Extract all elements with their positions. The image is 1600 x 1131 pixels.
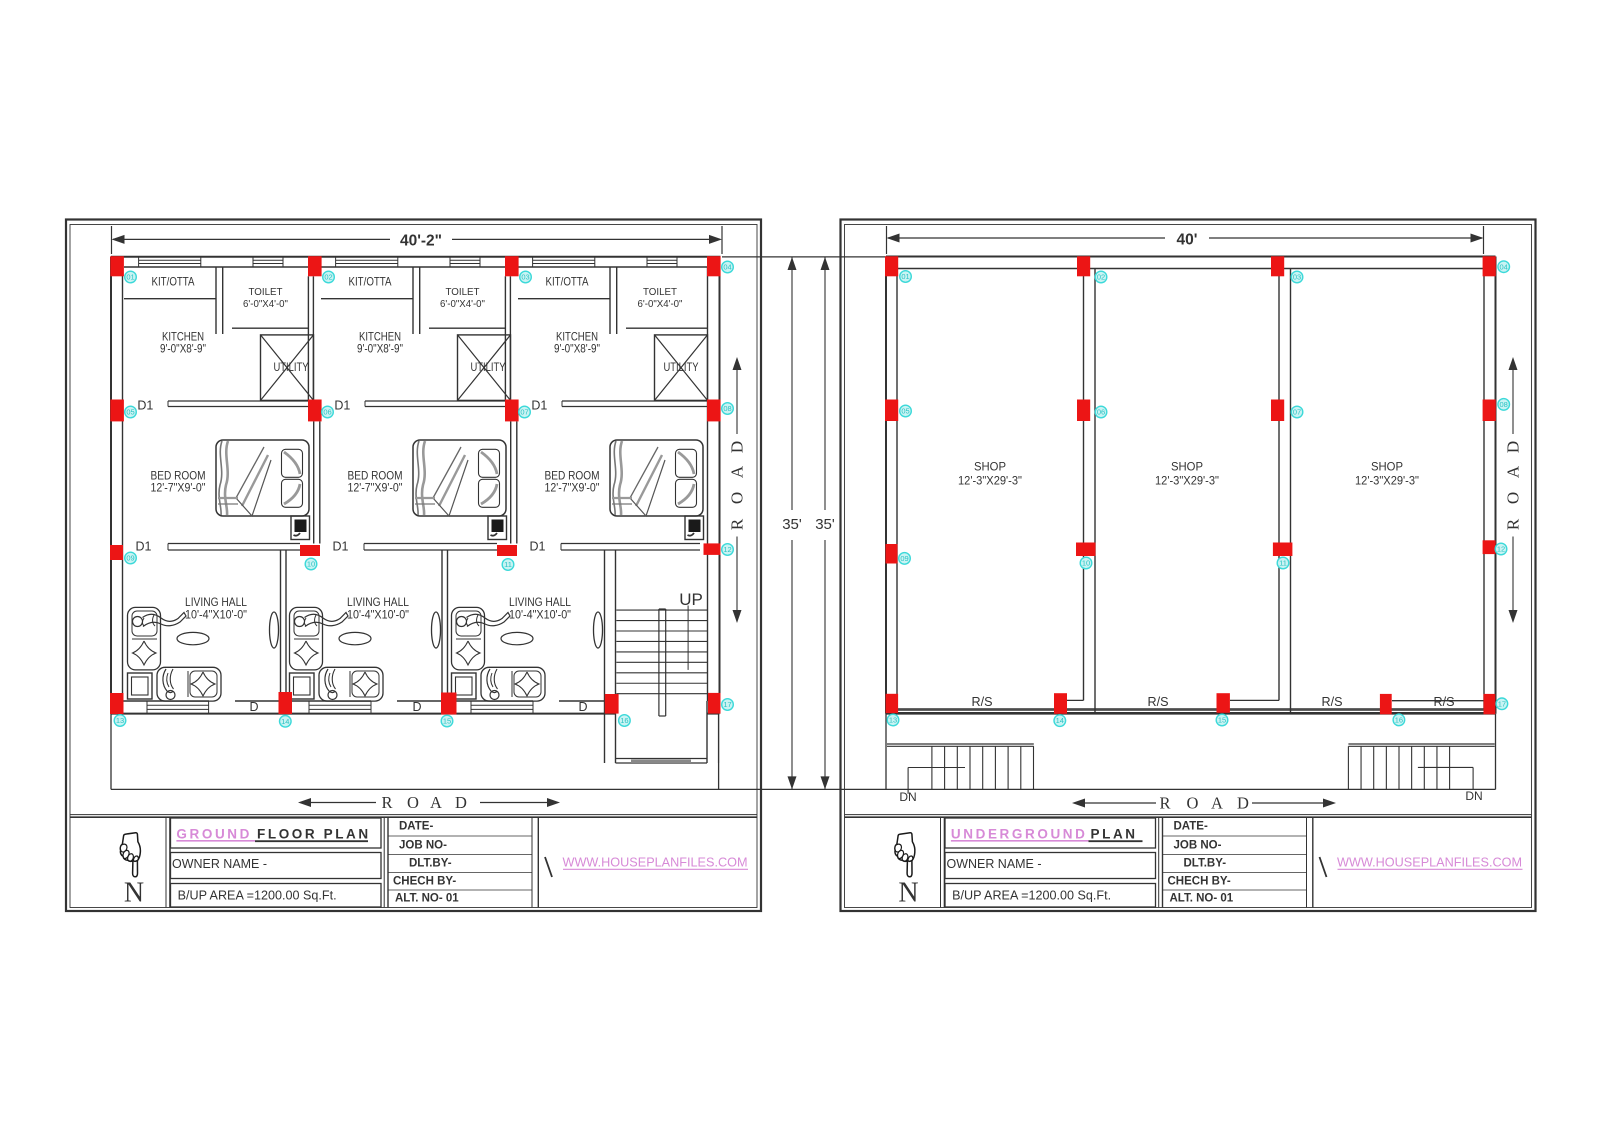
svg-text:02: 02: [324, 273, 332, 282]
svg-text:A: A: [1504, 465, 1523, 478]
svg-text:12'-7"X9'-0": 12'-7"X9'-0": [545, 481, 600, 495]
svg-text:07: 07: [520, 408, 528, 417]
svg-text:9'-0"X8'-9": 9'-0"X8'-9": [160, 342, 206, 356]
svg-text:12: 12: [723, 545, 731, 554]
svg-text:GROUND: GROUND: [176, 826, 252, 841]
svg-text:O: O: [1504, 492, 1523, 504]
svg-text:DLT.BY-: DLT.BY-: [1184, 858, 1227, 870]
svg-text:09: 09: [126, 554, 134, 563]
svg-text:SHOP: SHOP: [1371, 460, 1403, 474]
svg-text:KIT/OTTA: KIT/OTTA: [546, 275, 589, 289]
svg-text:DN: DN: [899, 790, 916, 804]
svg-text:R/S: R/S: [972, 694, 993, 709]
svg-text:05: 05: [126, 408, 134, 417]
svg-text:KIT/OTTA: KIT/OTTA: [152, 275, 195, 289]
svg-text:35': 35': [782, 516, 802, 533]
svg-text:35': 35': [815, 516, 835, 533]
svg-text:A: A: [430, 793, 442, 812]
svg-text:01: 01: [901, 272, 909, 281]
svg-text:12'-3"X29'-3": 12'-3"X29'-3": [1355, 474, 1419, 488]
svg-text:PLAN: PLAN: [1091, 826, 1138, 841]
svg-text:UTILITY: UTILITY: [471, 360, 506, 374]
svg-text:10: 10: [307, 560, 315, 569]
svg-text:15: 15: [1218, 716, 1226, 725]
svg-text:UTILITY: UTILITY: [274, 360, 309, 374]
svg-text:R: R: [1504, 518, 1523, 530]
svg-text:D1: D1: [137, 399, 153, 413]
svg-text:16: 16: [1395, 716, 1403, 725]
svg-text:SHOP: SHOP: [1171, 460, 1203, 474]
svg-text:6'-0"X4'-0": 6'-0"X4'-0": [440, 298, 485, 310]
svg-text:11: 11: [1279, 559, 1287, 568]
svg-text:R/S: R/S: [1148, 694, 1169, 709]
svg-text:12: 12: [1497, 545, 1505, 554]
svg-text:O: O: [728, 492, 747, 504]
svg-text:07: 07: [1293, 408, 1301, 417]
svg-text:D: D: [1504, 441, 1523, 453]
svg-text:ALT. NO- 01: ALT. NO- 01: [1170, 893, 1234, 905]
svg-text:12'-7"X9'-0": 12'-7"X9'-0": [348, 481, 403, 495]
svg-text:OWNER NAME -: OWNER NAME -: [947, 856, 1042, 871]
svg-text:D: D: [728, 441, 747, 453]
svg-text:TOILET: TOILET: [643, 286, 678, 298]
svg-text:CHECH BY-: CHECH BY-: [1168, 876, 1231, 888]
svg-text:D: D: [578, 700, 587, 714]
svg-text:UNDERGROUND: UNDERGROUND: [951, 826, 1088, 841]
svg-text:R: R: [381, 793, 392, 812]
svg-text:D: D: [249, 700, 258, 714]
svg-text:04: 04: [723, 263, 731, 272]
svg-text:10'-4"X10'-0": 10'-4"X10'-0": [509, 608, 571, 622]
svg-text:D1: D1: [136, 540, 152, 554]
svg-text:DATE-: DATE-: [1174, 821, 1208, 833]
svg-text:10'-4"X10'-0": 10'-4"X10'-0": [347, 608, 409, 622]
svg-text:ALT. NO- 01: ALT. NO- 01: [395, 893, 459, 905]
svg-text:WWW.HOUSEPLANFILES.COM: WWW.HOUSEPLANFILES.COM: [1337, 855, 1522, 870]
svg-text:UP: UP: [679, 590, 703, 609]
svg-text:WWW.HOUSEPLANFILES.COM: WWW.HOUSEPLANFILES.COM: [563, 855, 748, 870]
svg-text:D: D: [455, 793, 467, 812]
svg-text:6'-0"X4'-0": 6'-0"X4'-0": [638, 298, 683, 310]
svg-text:R: R: [1159, 794, 1170, 813]
svg-text:SHOP: SHOP: [974, 460, 1006, 474]
svg-text:09: 09: [900, 554, 908, 563]
svg-text:10: 10: [1082, 559, 1090, 568]
svg-text:D1: D1: [531, 399, 547, 413]
svg-text:06: 06: [1097, 408, 1105, 417]
svg-text:A: A: [1211, 794, 1223, 813]
svg-text:9'-0"X8'-9": 9'-0"X8'-9": [357, 342, 403, 356]
svg-text:N: N: [124, 878, 144, 909]
svg-text:40'-2": 40'-2": [400, 233, 442, 250]
svg-text:O: O: [1187, 794, 1199, 813]
svg-text:CHECH BY-: CHECH BY-: [393, 876, 456, 888]
svg-text:JOB NO-: JOB NO-: [1174, 840, 1222, 852]
svg-text:12'-7"X9'-0": 12'-7"X9'-0": [151, 481, 206, 495]
svg-text:N: N: [898, 878, 918, 909]
svg-text:OWNER NAME -: OWNER NAME -: [172, 856, 267, 871]
svg-text:DLT.BY-: DLT.BY-: [409, 858, 452, 870]
svg-text:KIT/OTTA: KIT/OTTA: [349, 275, 392, 289]
svg-text:13: 13: [116, 716, 124, 725]
svg-text:B/UP AREA =1200.00 Sq.Ft.: B/UP AREA =1200.00 Sq.Ft.: [952, 888, 1111, 903]
svg-text:R/S: R/S: [1322, 694, 1343, 709]
svg-text:15: 15: [443, 717, 451, 726]
svg-text:TOILET: TOILET: [446, 286, 481, 298]
svg-text:D: D: [412, 700, 421, 714]
svg-text:R/S: R/S: [1434, 694, 1455, 709]
svg-text:14: 14: [1056, 716, 1064, 725]
svg-text:08: 08: [1500, 400, 1508, 409]
svg-text:D1: D1: [334, 399, 350, 413]
svg-text:40': 40': [1177, 232, 1198, 249]
svg-text:11: 11: [504, 560, 512, 569]
svg-text:O: O: [407, 793, 419, 812]
svg-text:08: 08: [723, 404, 731, 413]
svg-text:DN: DN: [1465, 789, 1482, 803]
svg-text:12'-3"X29'-3": 12'-3"X29'-3": [1155, 474, 1219, 488]
svg-text:D1: D1: [530, 540, 546, 554]
svg-text:02: 02: [1097, 273, 1105, 282]
svg-text:03: 03: [521, 273, 529, 282]
svg-text:05: 05: [901, 407, 909, 416]
svg-text:06: 06: [323, 408, 331, 417]
svg-text:03: 03: [1293, 273, 1301, 282]
svg-text:B/UP AREA =1200.00 Sq.Ft.: B/UP AREA =1200.00 Sq.Ft.: [178, 888, 337, 903]
svg-text:13: 13: [889, 716, 897, 725]
svg-text:UTILITY: UTILITY: [664, 360, 699, 374]
svg-text:JOB NO-: JOB NO-: [399, 840, 447, 852]
svg-text:6'-0"X4'-0": 6'-0"X4'-0": [243, 298, 288, 310]
svg-text:16: 16: [620, 716, 628, 725]
svg-text:A: A: [728, 465, 747, 478]
svg-text:9'-0"X8'-9": 9'-0"X8'-9": [554, 342, 600, 356]
svg-text:TOILET: TOILET: [249, 286, 284, 298]
svg-text:DATE-: DATE-: [399, 821, 433, 833]
svg-text:12'-3"X29'-3": 12'-3"X29'-3": [958, 474, 1022, 488]
svg-text:01: 01: [126, 273, 134, 282]
svg-text:17: 17: [1498, 699, 1506, 708]
svg-text:R: R: [728, 518, 747, 530]
svg-text:10'-4"X10'-0": 10'-4"X10'-0": [185, 608, 247, 622]
svg-text:14: 14: [281, 717, 289, 726]
svg-text:17: 17: [723, 700, 731, 709]
svg-text:D1: D1: [333, 540, 349, 554]
svg-text:04: 04: [1500, 262, 1508, 271]
svg-text:FLOOR PLAN: FLOOR PLAN: [257, 826, 371, 841]
svg-text:D: D: [1237, 794, 1249, 813]
